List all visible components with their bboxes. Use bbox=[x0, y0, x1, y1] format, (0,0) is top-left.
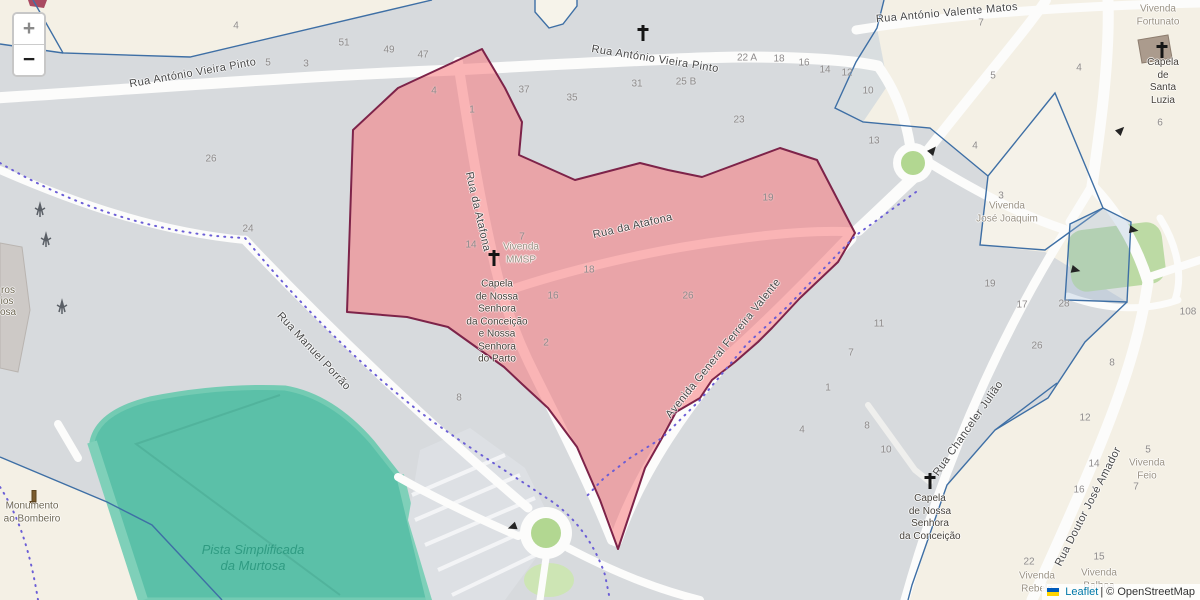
ukraine-flag-icon bbox=[1047, 588, 1059, 596]
zoom-out-button[interactable]: − bbox=[14, 45, 44, 75]
map-tiles bbox=[0, 0, 1200, 600]
attribution-separator: | bbox=[1100, 586, 1103, 598]
buildings-layer bbox=[1138, 35, 1172, 63]
zoom-in-button[interactable]: + bbox=[14, 14, 44, 45]
map-canvas[interactable]: Rua António Vieira Pinto Rua António Vie… bbox=[0, 0, 1200, 600]
zoom-control: + − bbox=[12, 12, 46, 77]
osm-copyright[interactable]: © OpenStreetMap bbox=[1106, 586, 1195, 598]
attribution-bar: Leaflet | © OpenStreetMap bbox=[1042, 584, 1200, 600]
leaflet-link[interactable]: Leaflet bbox=[1065, 586, 1098, 598]
